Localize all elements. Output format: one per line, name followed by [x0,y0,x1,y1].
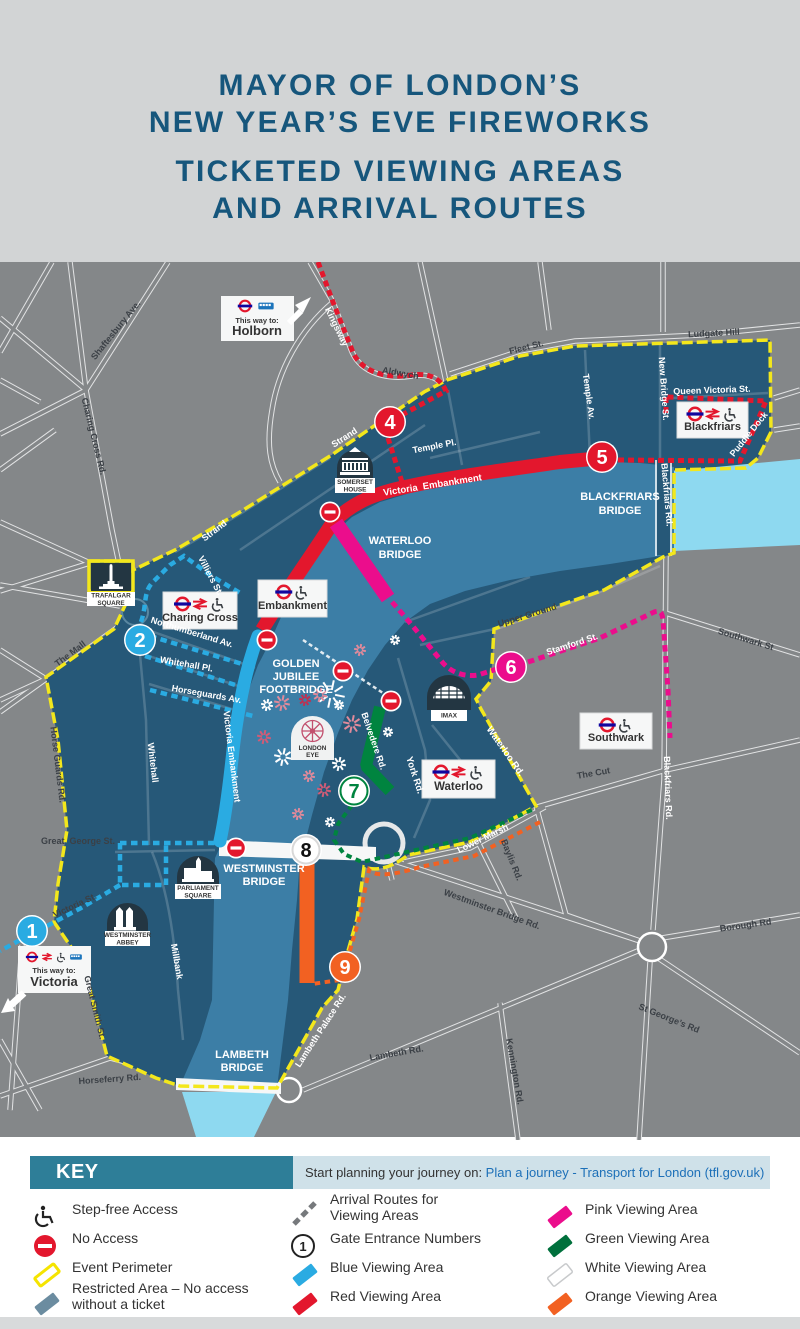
svg-text:TRAFALGAR: TRAFALGAR [91,592,131,599]
svg-text:BRIDGE: BRIDGE [221,1062,264,1074]
svg-text:Southwark: Southwark [588,732,645,744]
svg-text:WESTMINSTER: WESTMINSTER [104,932,152,939]
svg-text:GOLDEN: GOLDEN [272,658,319,670]
svg-text:SQUARE: SQUARE [97,600,125,607]
svg-text:Embankment: Embankment [258,600,327,612]
svg-text:PARLIAMENT: PARLIAMENT [177,885,219,892]
svg-text:BRIDGE: BRIDGE [599,505,642,517]
svg-text:5: 5 [596,447,607,469]
svg-text:LONDON: LONDON [299,745,327,752]
svg-text:IMAX: IMAX [441,713,458,720]
svg-text:ABBEY: ABBEY [116,940,139,947]
svg-text:2: 2 [134,630,145,652]
svg-text:Holborn: Holborn [232,323,282,338]
svg-text:JUBILEE: JUBILEE [273,671,319,683]
svg-text:HOUSE: HOUSE [344,487,367,494]
svg-text:FOOTBRIDGE: FOOTBRIDGE [259,684,332,696]
svg-text:WATERLOO: WATERLOO [369,535,432,547]
svg-text:EYE: EYE [306,752,320,759]
svg-text:4: 4 [384,412,396,434]
svg-text:Waterloo: Waterloo [434,781,483,793]
svg-text:Blackfriars: Blackfriars [684,421,741,433]
svg-text:WESTMINSTER: WESTMINSTER [223,863,304,875]
svg-text:BRIDGE: BRIDGE [379,549,422,561]
svg-text:BLACKFRIARS: BLACKFRIARS [580,491,659,503]
svg-text:LAMBETH: LAMBETH [215,1049,269,1061]
svg-text:9: 9 [339,957,350,979]
svg-text:SQUARE: SQUARE [184,893,212,900]
svg-text:BRIDGE: BRIDGE [243,876,286,888]
svg-text:7: 7 [348,781,359,803]
svg-text:1: 1 [26,921,37,943]
svg-text:6: 6 [505,657,516,679]
svg-text:8: 8 [300,840,311,862]
svg-text:Great George St.: Great George St. [41,836,115,846]
svg-text:1: 1 [299,1239,306,1254]
svg-text:SOMERSET: SOMERSET [337,479,373,486]
svg-text:Victoria: Victoria [30,974,78,989]
